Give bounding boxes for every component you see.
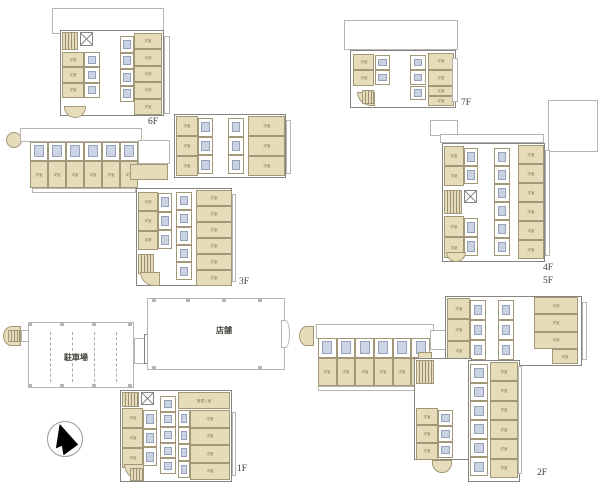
room: 洋室 xyxy=(428,70,454,87)
bed xyxy=(393,338,412,358)
bath-fixture xyxy=(414,74,423,82)
room-label: 洋室 xyxy=(455,307,462,311)
bath-fixture xyxy=(88,56,97,64)
floorplan-sheet: 洋室洋室洋室洋室洋室洋室洋室洋室6F洋室洋室洋室洋室洋室洋室7F洋室洋室洋室洋室… xyxy=(0,0,600,486)
room-label: 洋室 xyxy=(69,58,76,62)
room: 洋室 xyxy=(518,221,544,240)
stairs xyxy=(416,360,434,384)
bath-fixture xyxy=(498,242,507,252)
room-label: 洋室 xyxy=(69,89,76,93)
floor4-label: 4F xyxy=(543,264,553,274)
room: 洋室 xyxy=(490,362,518,381)
bath-unit xyxy=(176,262,192,280)
building-outline xyxy=(164,36,170,114)
room: 洋室 xyxy=(84,161,102,188)
room-label: 洋室 xyxy=(206,452,213,456)
bath-fixture xyxy=(88,71,97,79)
bath-fixture xyxy=(180,231,189,240)
room: 洋室 xyxy=(353,70,374,86)
bath-unit xyxy=(464,148,478,166)
room-label: 洋室 xyxy=(500,370,507,374)
room: 洋室 xyxy=(30,161,48,188)
bath-unit xyxy=(494,238,510,256)
room: 洋室 xyxy=(490,401,518,420)
room-label: 洋室 xyxy=(183,164,190,168)
bath-fixture xyxy=(201,160,209,170)
bath-unit xyxy=(160,412,176,428)
bath-unit xyxy=(470,401,488,420)
room: 洋室 xyxy=(196,238,232,254)
bath-unit xyxy=(494,166,510,184)
building-outline xyxy=(452,58,458,102)
bath-unit xyxy=(470,320,486,340)
floor2-label: 2F xyxy=(537,469,547,479)
building-outline xyxy=(138,140,170,164)
room-label: 洋室 xyxy=(53,173,60,177)
room: 洋室 xyxy=(138,192,158,211)
room: 洋室 xyxy=(196,190,232,206)
room-label: 洋室 xyxy=(144,200,151,204)
north-arrow-icon xyxy=(47,421,83,457)
room-label: 洋室 xyxy=(210,212,217,216)
room-label: 洋室 xyxy=(342,370,349,374)
room-label: 洋室 xyxy=(144,39,151,43)
room-label: 洋室 xyxy=(500,389,507,393)
bath-unit xyxy=(494,148,510,166)
room-label: 洋室 xyxy=(450,174,457,178)
bath-unit xyxy=(375,55,390,70)
building-outline xyxy=(286,120,291,174)
floor3-label: 3F xyxy=(239,278,249,288)
bath-unit xyxy=(470,420,488,439)
bed-mattress xyxy=(360,341,370,354)
bath-unit xyxy=(176,227,192,245)
bath-fixture xyxy=(88,86,97,94)
bath-unit xyxy=(470,439,488,458)
room-label: 洋室 xyxy=(263,124,270,128)
elevator xyxy=(80,32,93,46)
room-label: 洋室 xyxy=(206,417,213,421)
room: 洋室 xyxy=(138,211,158,230)
bed-mattress xyxy=(34,145,44,157)
room-label: 洋室 xyxy=(263,144,270,148)
bath-unit xyxy=(470,383,488,402)
room-label: 洋室 xyxy=(210,196,217,200)
room-label: 洋室 xyxy=(398,370,405,374)
parking-label: 駐車場 xyxy=(64,354,88,362)
room-label: 洋室 xyxy=(527,229,534,233)
bath-fixture xyxy=(146,433,154,443)
room-label: 洋室 xyxy=(552,321,559,325)
parking-line xyxy=(116,332,117,382)
room: 洋室 xyxy=(444,146,464,166)
room-label: 洋室 xyxy=(380,370,387,374)
room: 洋室 xyxy=(248,156,285,176)
building-outline xyxy=(20,128,142,142)
building-outline xyxy=(232,412,236,476)
room: 洋室 xyxy=(248,116,285,136)
room: 洋室 xyxy=(447,298,470,319)
bath-unit xyxy=(228,137,244,156)
building-outline xyxy=(318,386,428,391)
bed-mattress xyxy=(378,341,388,354)
bath-unit xyxy=(84,83,100,98)
bed xyxy=(102,142,120,161)
bath-fixture xyxy=(180,214,189,223)
bath-fixture xyxy=(498,188,507,198)
room-label: 洋室 xyxy=(527,248,534,252)
bath-fixture xyxy=(232,141,241,151)
room-label: 洋室 xyxy=(144,72,151,76)
bath-fixture xyxy=(474,345,483,356)
bath-fixture xyxy=(181,414,187,423)
bath-unit xyxy=(120,53,134,70)
floor7-label: 7F xyxy=(461,99,471,109)
parking-line xyxy=(94,332,95,382)
bath-fixture xyxy=(474,424,484,434)
bed xyxy=(30,142,48,161)
bath-fixture xyxy=(474,462,484,472)
room: 洋室 xyxy=(518,183,544,202)
room: 洋室 xyxy=(122,408,143,428)
bed-mattress xyxy=(397,341,407,354)
bath-fixture xyxy=(181,465,187,474)
bath-fixture xyxy=(180,267,189,276)
bath-unit xyxy=(498,340,514,360)
room-label: 洋室 xyxy=(455,328,462,332)
bath-fixture xyxy=(441,414,449,422)
room-label: 洋室 xyxy=(210,244,217,248)
bath-unit xyxy=(158,230,172,249)
room: 洋室 xyxy=(337,358,356,386)
bath-fixture xyxy=(164,447,173,455)
room-label: 洋室 xyxy=(561,355,568,359)
bath-fixture xyxy=(467,241,475,251)
room: 洋室 xyxy=(318,358,337,386)
room: 洋室 xyxy=(490,420,518,439)
bath-fixture xyxy=(502,325,511,336)
room-label: 洋室 xyxy=(552,304,559,308)
column xyxy=(28,322,32,326)
room: 洋室 xyxy=(490,439,518,458)
stairs xyxy=(8,330,20,342)
bath-unit xyxy=(198,118,213,137)
bath-fixture xyxy=(164,431,173,439)
room-label: 洋室 xyxy=(144,219,151,223)
column xyxy=(186,298,190,302)
room-label: 洋室 xyxy=(35,173,42,177)
bath-fixture xyxy=(164,462,173,470)
bath-fixture xyxy=(123,89,131,98)
bath-fixture xyxy=(414,59,423,67)
room-label: 洋室 xyxy=(263,164,270,168)
balcony xyxy=(299,326,314,346)
bath-fixture xyxy=(146,414,154,424)
column xyxy=(28,384,32,388)
bath-unit xyxy=(498,320,514,340)
bath-unit xyxy=(160,458,176,474)
room: 洋室 xyxy=(248,136,285,156)
bath-unit xyxy=(176,192,192,210)
bath-unit xyxy=(160,396,176,412)
bath-unit xyxy=(120,86,134,103)
room-label: 管理人室 xyxy=(197,399,211,403)
bath-fixture xyxy=(467,170,475,180)
room: 洋室 xyxy=(444,166,464,186)
bath-unit xyxy=(438,426,453,442)
bath-fixture xyxy=(441,430,449,438)
stairs xyxy=(122,392,139,407)
room-label: 洋室 xyxy=(129,456,136,460)
bath-unit xyxy=(143,447,157,466)
room: 洋室 xyxy=(534,332,578,349)
room-label: 洋室 xyxy=(144,105,151,109)
room: 洋室 xyxy=(444,216,464,237)
bath-fixture xyxy=(414,89,423,96)
room-label: 洋室 xyxy=(361,370,368,374)
room-label: 洋室 xyxy=(129,416,136,420)
room: 洋室 xyxy=(62,67,84,82)
room-label: 洋室 xyxy=(500,467,507,471)
bath-fixture xyxy=(181,448,187,457)
bath-unit xyxy=(464,237,478,256)
column xyxy=(128,384,132,388)
bath-unit xyxy=(198,155,213,174)
bed-mattress xyxy=(106,145,116,157)
bath-fixture xyxy=(502,345,511,356)
bath-fixture xyxy=(378,59,386,67)
room: 洋室 xyxy=(190,410,230,428)
bath-unit xyxy=(178,444,190,461)
room-label: 洋室 xyxy=(183,144,190,148)
bath-fixture xyxy=(474,305,483,316)
building-outline xyxy=(316,324,434,339)
bath-fixture xyxy=(161,197,169,207)
bed xyxy=(374,338,393,358)
column xyxy=(92,384,96,388)
room-label: 洋室 xyxy=(423,432,430,436)
bed xyxy=(337,338,356,358)
bed-mattress xyxy=(88,145,98,157)
room-label: 洋室 xyxy=(129,436,136,440)
bath-unit xyxy=(498,300,514,320)
bed-mattress xyxy=(322,341,332,354)
room: 洋室 xyxy=(190,428,230,446)
room: 洋室 xyxy=(196,270,232,286)
bath-fixture xyxy=(123,40,131,49)
bath-unit xyxy=(158,193,172,212)
building-outline xyxy=(32,188,136,193)
room-label: 洋室 xyxy=(210,276,217,280)
room: 洋室 xyxy=(62,83,84,98)
store-label: 店舗 xyxy=(216,327,232,335)
bath-fixture xyxy=(474,325,483,336)
bath-unit xyxy=(120,69,134,86)
room-label: 洋室 xyxy=(500,447,507,451)
bed xyxy=(48,142,66,161)
room: 洋室 xyxy=(490,381,518,400)
room: 洋室 xyxy=(534,314,578,331)
bath-unit xyxy=(438,410,453,426)
room-label: 洋室 xyxy=(206,469,213,473)
bath-fixture xyxy=(123,73,131,82)
room: 洋室 xyxy=(552,349,578,364)
room: 洋室 xyxy=(102,161,120,188)
room-label: 洋室 xyxy=(144,239,151,243)
room-label: 洋室 xyxy=(144,56,151,60)
room: 洋室 xyxy=(353,54,374,70)
stairs xyxy=(130,468,144,481)
room xyxy=(130,164,168,180)
bath-unit xyxy=(464,166,478,184)
bath-unit xyxy=(464,218,478,237)
room-label: 洋室 xyxy=(437,89,444,93)
room-label: 洋室 xyxy=(450,154,457,158)
bath-fixture xyxy=(161,235,169,245)
room: 洋室 xyxy=(122,428,143,448)
building-outline xyxy=(344,20,458,50)
room: 洋室 xyxy=(196,222,232,238)
room-label: 洋室 xyxy=(206,434,213,438)
stairs xyxy=(362,90,374,104)
room-label: 洋室 xyxy=(450,225,457,229)
bath-fixture xyxy=(441,446,449,454)
room-label: 洋室 xyxy=(455,350,462,354)
bath-fixture xyxy=(180,249,189,258)
room: 洋室 xyxy=(447,319,470,340)
bath-unit xyxy=(120,36,134,53)
room: 洋室 xyxy=(518,202,544,221)
bed xyxy=(66,142,84,161)
bath-unit xyxy=(494,220,510,238)
bath-unit xyxy=(470,340,486,360)
bed-mattress xyxy=(341,341,351,354)
bath-unit xyxy=(228,155,244,174)
room-label: 洋室 xyxy=(69,73,76,77)
room: 洋室 xyxy=(518,240,544,259)
bath-fixture xyxy=(232,122,241,132)
column xyxy=(60,384,64,388)
building-outline xyxy=(545,150,550,256)
bath-unit xyxy=(494,184,510,202)
bath-unit xyxy=(176,210,192,228)
room: 洋室 xyxy=(428,86,454,96)
bath-fixture xyxy=(498,206,507,216)
room-label: 洋室 xyxy=(360,60,367,64)
room: 洋室 xyxy=(518,145,544,164)
bed xyxy=(84,142,102,161)
bath-unit xyxy=(178,427,190,444)
balcony xyxy=(64,106,86,118)
bath-fixture xyxy=(474,368,484,378)
bath-unit xyxy=(228,118,244,137)
room: 洋室 xyxy=(355,358,374,386)
bed xyxy=(120,142,138,161)
elevator xyxy=(141,392,154,405)
bath-fixture xyxy=(123,56,131,65)
room-label: 洋室 xyxy=(144,89,151,93)
room-label: 洋室 xyxy=(500,428,507,432)
room: 洋室 xyxy=(490,459,518,478)
room-label: 洋室 xyxy=(423,415,430,419)
bath-fixture xyxy=(502,305,511,316)
stairs xyxy=(444,190,462,214)
room-label: 洋室 xyxy=(437,59,444,63)
room: 洋室 xyxy=(134,82,162,98)
room-label: 洋室 xyxy=(527,210,534,214)
room-label: 洋室 xyxy=(450,246,457,250)
bath-fixture xyxy=(474,406,484,416)
building-outline xyxy=(582,302,587,360)
bath-fixture xyxy=(232,160,241,170)
bath-unit xyxy=(158,212,172,231)
bath-fixture xyxy=(201,141,209,151)
bath-unit xyxy=(375,70,390,85)
column xyxy=(152,298,156,302)
bath-unit xyxy=(410,86,426,100)
room: 管理人室 xyxy=(178,392,230,409)
room: 洋室 xyxy=(134,49,162,65)
room: 洋室 xyxy=(196,254,232,270)
room: 洋室 xyxy=(416,443,438,460)
room: 洋室 xyxy=(134,66,162,82)
room-label: 洋室 xyxy=(437,76,444,80)
bath-fixture xyxy=(474,443,484,453)
bath-fixture xyxy=(474,387,484,397)
floor5-label: 5F xyxy=(543,277,553,287)
column xyxy=(92,322,96,326)
bath-unit xyxy=(160,443,176,459)
column xyxy=(60,322,64,326)
room-label: 洋室 xyxy=(71,173,78,177)
column xyxy=(258,298,262,302)
bath-unit xyxy=(470,300,486,320)
bath-fixture xyxy=(498,224,507,234)
room: 洋室 xyxy=(134,33,162,49)
room: 洋室 xyxy=(190,463,230,481)
room-label: 洋室 xyxy=(107,173,114,177)
room: 洋室 xyxy=(374,358,393,386)
building-outline xyxy=(440,134,544,143)
bath-unit xyxy=(143,410,157,429)
room-label: 洋室 xyxy=(423,450,430,454)
bath-fixture xyxy=(378,74,386,82)
room-label: 洋室 xyxy=(527,153,534,157)
bath-unit xyxy=(143,429,157,448)
floor6-label: 6F xyxy=(148,118,158,128)
bath-unit xyxy=(178,461,190,478)
elevator xyxy=(464,190,477,203)
bath-unit xyxy=(410,55,426,70)
room-label: 洋室 xyxy=(500,409,507,413)
room: 洋室 xyxy=(518,164,544,183)
bed-mattress xyxy=(124,145,134,157)
stairs xyxy=(138,254,154,274)
room: 洋室 xyxy=(534,297,578,314)
room: 洋室 xyxy=(196,206,232,222)
bed-mattress xyxy=(52,145,62,157)
bath-fixture xyxy=(146,452,154,462)
building-outline xyxy=(281,320,290,348)
column xyxy=(128,322,132,326)
bath-unit xyxy=(178,410,190,427)
room-label: 洋室 xyxy=(324,370,331,374)
parking-line xyxy=(50,332,51,382)
room: 洋室 xyxy=(62,52,84,67)
bath-fixture xyxy=(467,152,475,162)
room: 洋室 xyxy=(134,99,162,115)
column xyxy=(222,298,226,302)
